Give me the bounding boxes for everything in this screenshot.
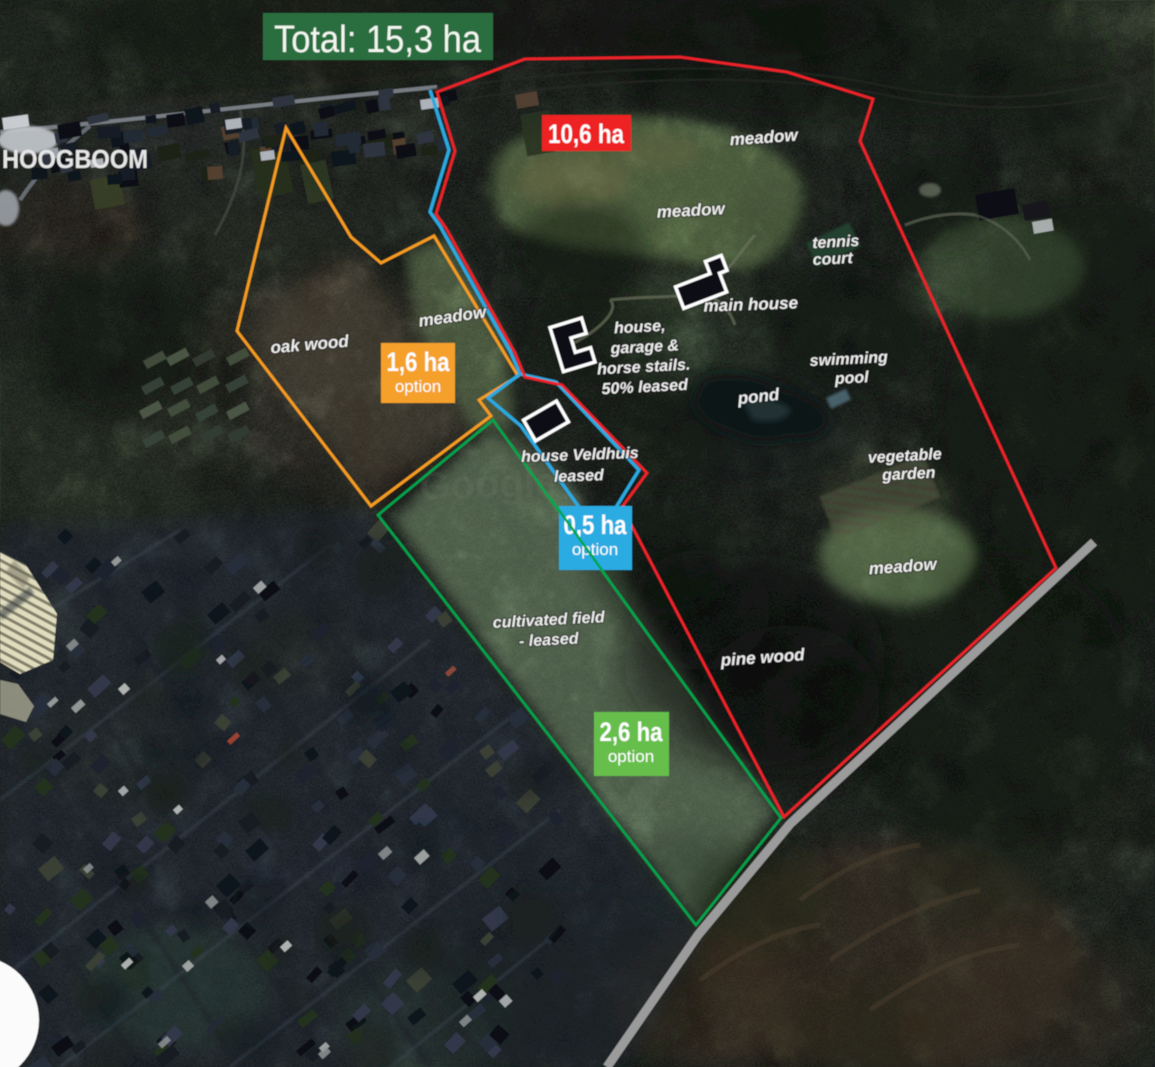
svg-text:garage &: garage & bbox=[609, 337, 679, 358]
svg-text:leased: leased bbox=[554, 467, 606, 486]
svg-text:option: option bbox=[572, 540, 618, 559]
svg-text:tennis: tennis bbox=[812, 233, 860, 252]
svg-text:court: court bbox=[812, 250, 854, 269]
svg-text:Google: Google bbox=[419, 460, 558, 509]
svg-text:option: option bbox=[395, 377, 441, 396]
svg-text:garden: garden bbox=[881, 465, 936, 485]
svg-text:Total: 15,3 ha: Total: 15,3 ha bbox=[274, 19, 482, 61]
svg-text:1,6 ha: 1,6 ha bbox=[387, 347, 451, 377]
svg-text:meadow: meadow bbox=[656, 199, 727, 222]
svg-text:pool: pool bbox=[833, 369, 869, 388]
svg-text:house,: house, bbox=[614, 318, 666, 338]
svg-text:option: option bbox=[608, 747, 654, 766]
svg-text:- leased: - leased bbox=[519, 630, 581, 650]
svg-text:main house: main house bbox=[703, 293, 798, 315]
svg-text:0,5 ha: 0,5 ha bbox=[564, 510, 628, 540]
svg-text:HOOGBOOM: HOOGBOOM bbox=[2, 144, 148, 174]
svg-text:10,6 ha: 10,6 ha bbox=[548, 119, 625, 149]
svg-text:2,6 ha: 2,6 ha bbox=[600, 717, 664, 747]
